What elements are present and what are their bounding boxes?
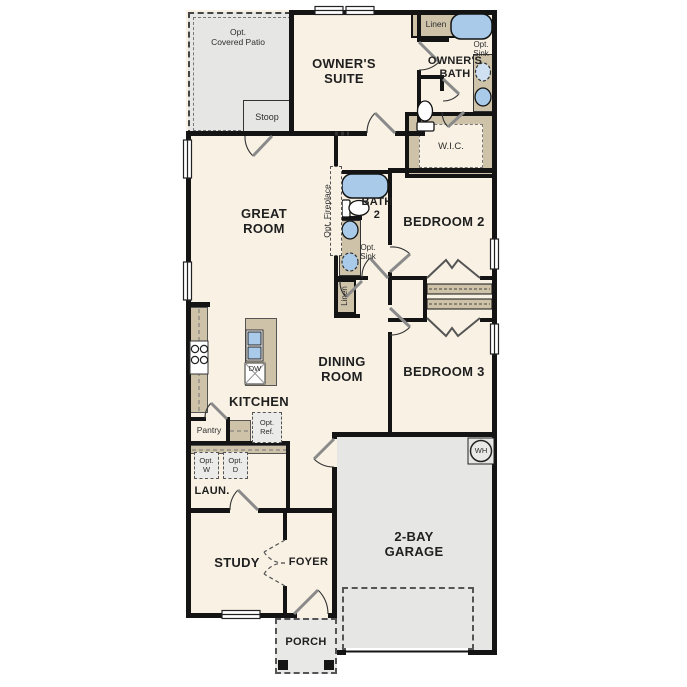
garage-vehicle-door — [346, 648, 468, 655]
owners-suite-label: OWNER'S SUITE — [294, 56, 394, 87]
porch-label: PORCH — [277, 636, 335, 649]
owners-opt-sink-label: Opt. Sink — [464, 40, 498, 58]
bath2-opt-sink-label: Opt. Sink — [352, 243, 384, 261]
range-icon — [190, 341, 208, 374]
bedroom2-label: BEDROOM 2 — [392, 214, 496, 229]
covered-patio-label: Opt. Covered Patio — [188, 28, 288, 48]
study-label: STUDY — [190, 555, 284, 570]
closet-bifold-door — [427, 260, 480, 336]
dining-room-label: DINING ROOM — [298, 354, 386, 385]
floor-plan: Linen — [0, 0, 687, 687]
sink-icon — [342, 63, 491, 271]
kitchen-label: KITCHEN — [209, 394, 309, 409]
laundry-label: LAUN. — [186, 485, 238, 498]
optional-dryer: Opt. D — [223, 452, 248, 479]
optional-refrigerator: Opt. Ref. — [252, 412, 282, 443]
opt-ref-label: Opt. Ref. — [260, 419, 274, 436]
wic-label: W.I.C. — [414, 142, 488, 153]
optional-washer: Opt. W — [194, 452, 219, 479]
bedroom3-label: BEDROOM 3 — [392, 364, 496, 379]
stoop-label: Stoop — [243, 112, 291, 122]
opt-washer-label: Opt. W — [199, 457, 213, 474]
garage-label: 2-BAY GARAGE — [354, 529, 474, 560]
great-room-label: GREAT ROOM — [204, 206, 324, 237]
linen-hall-label: Linen — [340, 278, 350, 314]
dishwasher-label: DW — [246, 365, 264, 373]
owners-bath-label: OWNER'S BATH — [417, 55, 493, 81]
closet-shelves — [427, 284, 492, 309]
pantry-label: Pantry — [188, 426, 230, 436]
foyer-label: FOYER — [285, 556, 332, 569]
water-heater-label: WH — [470, 447, 492, 455]
bath2-label: BATH 2 — [357, 196, 397, 222]
fixtures-overlay — [0, 0, 687, 687]
island-sink-icon — [246, 330, 263, 361]
opt-fireplace-label: Opt. Fireplace — [323, 166, 335, 256]
opt-dryer-label: Opt. D — [228, 457, 242, 474]
